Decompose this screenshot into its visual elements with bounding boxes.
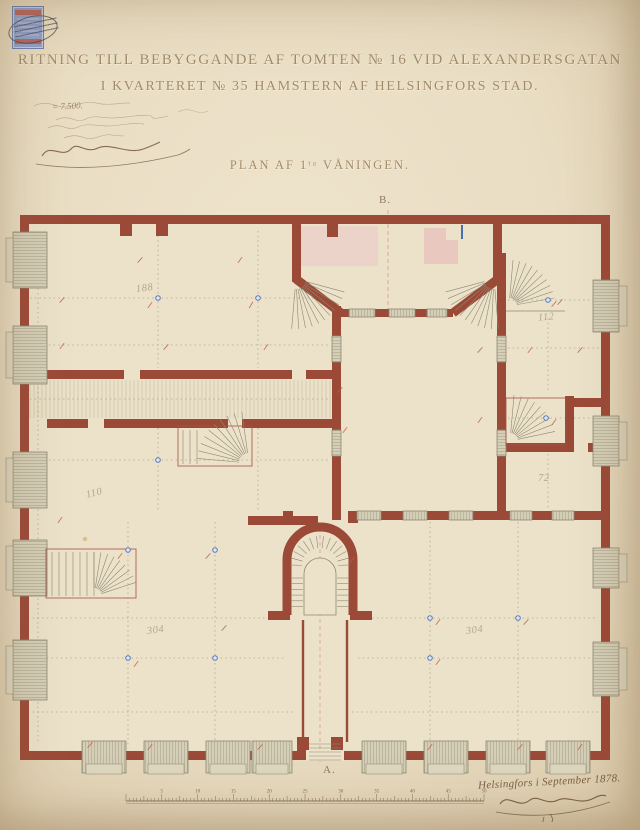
room-number-label: 110 [85,486,104,501]
section-label-b: B. [379,194,391,206]
stairs-layer [52,260,555,760]
plan-subtitle: PLAN AF 1ᵗᵃ VÅNINGEN. [0,158,640,173]
horseshoe-inner-arch [304,558,336,615]
scale-number: 35 [374,790,380,795]
room-number-label: 188 [135,282,154,295]
drawing-title-line1: RITNING TILL BEBYGGANDE AF TOMTEN № 16 V… [0,52,640,69]
room-number-label: 112 [538,311,555,323]
corridor-hatch [29,380,332,418]
room-number-label: 304 [465,624,484,637]
drawing-title-line2: I KVARTERET № 35 HAMSTERN AF HELSINGFORS… [0,79,640,95]
construction-lines [28,210,600,762]
scale-number: 5 [161,790,164,795]
scale-number: 15 [231,790,237,795]
scale-number: 10 [195,790,201,795]
pencil-marks [56,257,583,750]
scale-number: 30 [338,790,344,795]
revenue-stamp [12,6,44,49]
horseshoe-stair-wall [287,527,353,615]
wash-layer [300,224,462,266]
paper-layer [29,224,601,751]
pink-wash-right [424,228,458,264]
room-number-label: 304 [146,624,165,637]
drawing-sheet: RITNING TILL BEBYGGANDE AF TOMTEN № 16 V… [0,0,640,830]
room-number-label: 72 [538,473,550,484]
annotation-fragment: = 7.500. [52,100,83,112]
scale-number: 40 [410,790,416,795]
scale-bar: 5101520253035404550 [120,787,492,813]
thin-lines [46,311,566,615]
pink-wash-left [300,226,378,266]
walls-layer [20,215,610,761]
scale-number: 25 [303,790,309,795]
scale-number: 45 [446,790,452,795]
section-label-a: A. [323,764,336,776]
architect-signature [492,788,622,822]
window-bays [6,232,627,774]
scale-number: 20 [267,790,273,795]
